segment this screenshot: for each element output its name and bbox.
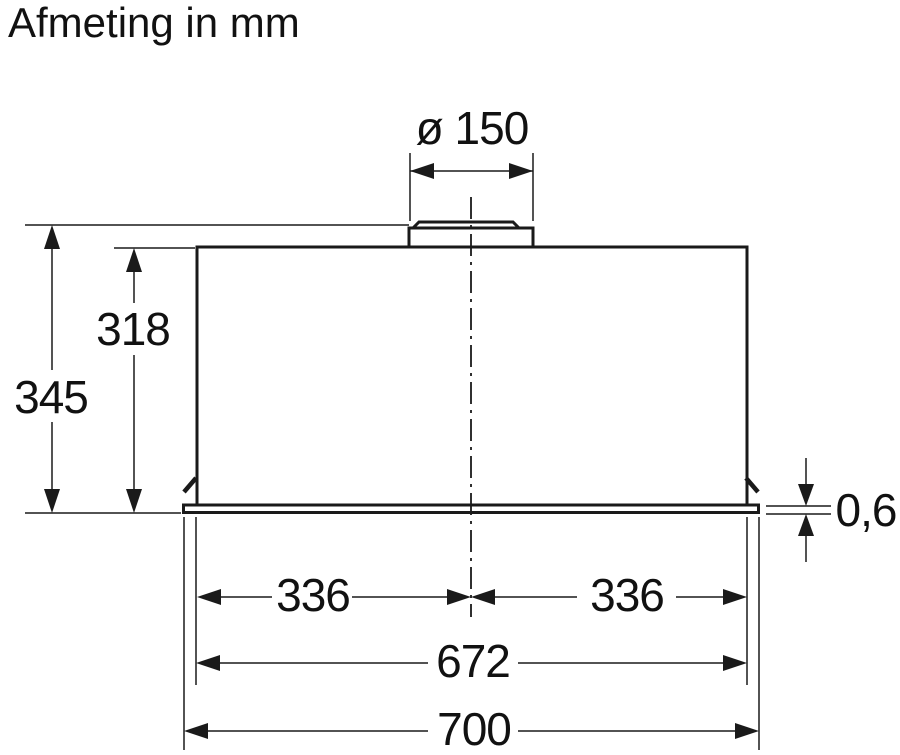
arrow-right-icon: [447, 589, 471, 605]
dimension-label-half-width-left: 336: [276, 569, 350, 621]
arrow-right-icon: [723, 655, 747, 671]
dimension-panel-thickness: 0,6: [766, 458, 896, 562]
page-title: Afmeting in mm: [8, 0, 300, 46]
dimension-label-panel-width: 700: [437, 703, 511, 755]
arrow-down-icon: [44, 489, 60, 513]
dimension-total-height: 345: [14, 225, 409, 513]
dimension-label-panel-thickness: 0,6: [836, 484, 897, 536]
hood-body-outline: [197, 247, 747, 504]
arrow-up-icon: [126, 248, 142, 272]
dimension-label-half-width-right: 336: [590, 569, 664, 621]
arrow-left-icon: [197, 589, 221, 605]
dimension-half-width-right: 336: [471, 569, 747, 621]
dimension-label-total-height: 345: [14, 371, 88, 423]
dimension-drawing-page: Afmeting in mm ø 150: [0, 0, 900, 755]
arrow-up-icon: [798, 514, 814, 536]
dimension-body-width: 672: [196, 635, 747, 687]
arrow-right-icon: [735, 723, 759, 739]
dimension-label-body-width: 672: [436, 635, 510, 687]
arrow-right-icon: [723, 589, 747, 605]
dimension-panel-width: 700: [184, 703, 759, 755]
dimension-label-duct-diameter: ø 150: [416, 102, 529, 154]
dimension-half-width-left: 336: [197, 569, 471, 621]
arrow-down-icon: [126, 489, 142, 513]
dimension-body-height: 318: [96, 248, 195, 513]
arrow-up-icon: [44, 225, 60, 249]
arrow-left-icon: [471, 589, 495, 605]
dimension-label-body-height: 318: [96, 303, 170, 355]
arrow-left-icon: [184, 723, 208, 739]
arrow-left-icon: [410, 163, 434, 179]
left-clip-stub: [184, 478, 196, 492]
arrow-down-icon: [798, 484, 814, 506]
hood-dimension-drawing: Afmeting in mm ø 150: [0, 0, 900, 755]
arrow-left-icon: [196, 655, 220, 671]
hood-object: [184, 197, 759, 617]
arrow-right-icon: [509, 163, 533, 179]
